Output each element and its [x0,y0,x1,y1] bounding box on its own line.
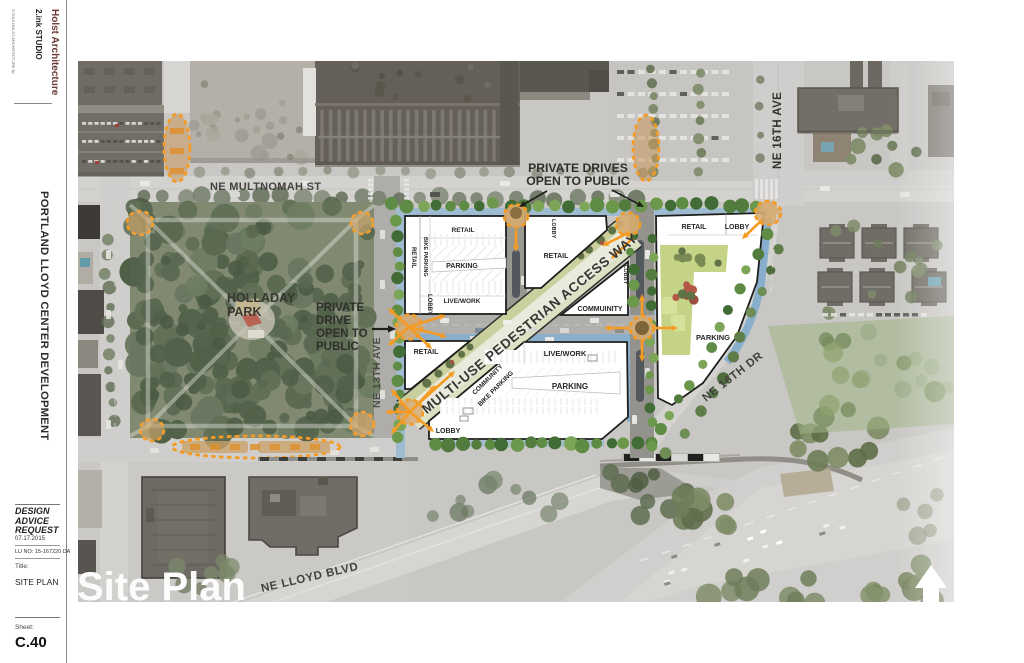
svg-text:Site Plan: Site Plan [77,565,246,609]
svg-text:© 2015 HOLST ARCHITECTURE llp: © 2015 HOLST ARCHITECTURE llp [11,9,16,74]
svg-text:Holst Architecture: Holst Architecture [49,9,60,96]
svg-text:PORTLAND LLOYD CENTER DEVELOPM: PORTLAND LLOYD CENTER DEVELOPMENT [38,191,50,441]
svg-text:2.ink STUDIO: 2.ink STUDIO [34,9,43,60]
